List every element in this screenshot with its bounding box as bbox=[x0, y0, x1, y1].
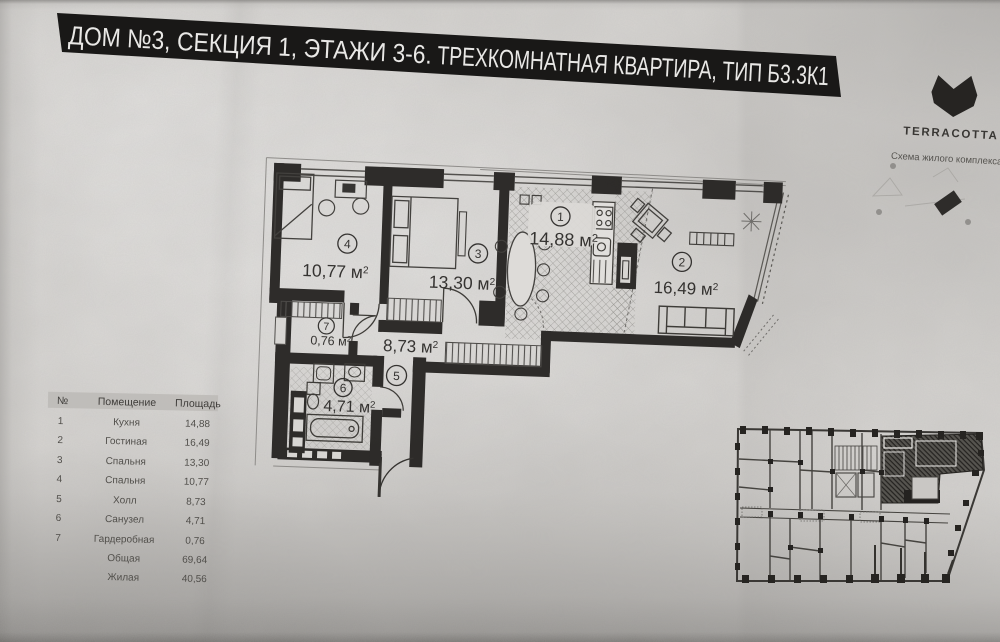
svg-text:14,88: 14,88 bbox=[185, 419, 211, 431]
svg-text:1: 1 bbox=[557, 210, 565, 224]
svg-text:5: 5 bbox=[393, 369, 401, 383]
svg-text:Гардеробная: Гардеробная bbox=[94, 533, 155, 546]
svg-text:4: 4 bbox=[344, 237, 352, 251]
svg-text:2: 2 bbox=[57, 435, 63, 446]
svg-text:Санузел: Санузел bbox=[105, 514, 144, 526]
svg-text:Общая: Общая bbox=[107, 552, 140, 565]
svg-text:10,77: 10,77 bbox=[184, 477, 210, 489]
svg-text:10,77 м2: 10,77 м2 bbox=[302, 260, 369, 282]
svg-text:7: 7 bbox=[323, 321, 329, 333]
svg-text:0,76 м2: 0,76 м2 bbox=[310, 333, 352, 349]
svg-text:Кухня: Кухня bbox=[113, 417, 140, 429]
svg-text:4,71 м2: 4,71 м2 bbox=[323, 398, 375, 417]
svg-text:6: 6 bbox=[56, 513, 62, 524]
svg-text:3: 3 bbox=[474, 247, 482, 261]
svg-text:2: 2 bbox=[678, 255, 686, 269]
svg-text:Жилая: Жилая bbox=[107, 572, 139, 584]
svg-text:5: 5 bbox=[56, 494, 62, 505]
svg-text:40,56: 40,56 bbox=[182, 574, 208, 586]
svg-text:№: № bbox=[57, 395, 69, 407]
svg-text:8,73: 8,73 bbox=[186, 497, 206, 508]
svg-text:Спальня: Спальня bbox=[105, 475, 145, 487]
svg-text:4: 4 bbox=[56, 474, 62, 485]
svg-text:6: 6 bbox=[339, 381, 347, 395]
svg-text:7: 7 bbox=[55, 533, 61, 544]
svg-text:Площадь: Площадь bbox=[175, 397, 221, 410]
svg-text:14,88 м2: 14,88 м2 bbox=[529, 228, 598, 250]
svg-text:4,71: 4,71 bbox=[186, 516, 206, 527]
svg-text:0,76: 0,76 bbox=[185, 536, 205, 547]
svg-text:Спальня: Спальня bbox=[106, 456, 146, 468]
svg-text:13,30 м2: 13,30 м2 bbox=[429, 272, 496, 294]
svg-text:Гостиная: Гостиная bbox=[105, 436, 147, 448]
svg-text:1: 1 bbox=[58, 416, 64, 427]
svg-text:13,30: 13,30 bbox=[184, 458, 210, 470]
svg-text:Холл: Холл bbox=[113, 495, 137, 506]
svg-text:3: 3 bbox=[57, 455, 63, 466]
svg-text:8,73 м2: 8,73 м2 bbox=[383, 336, 439, 357]
svg-text:16,49 м2: 16,49 м2 bbox=[653, 278, 719, 299]
svg-text:16,49: 16,49 bbox=[184, 438, 210, 450]
svg-text:Помещение: Помещение bbox=[98, 396, 157, 409]
svg-text:69,64: 69,64 bbox=[182, 555, 208, 567]
